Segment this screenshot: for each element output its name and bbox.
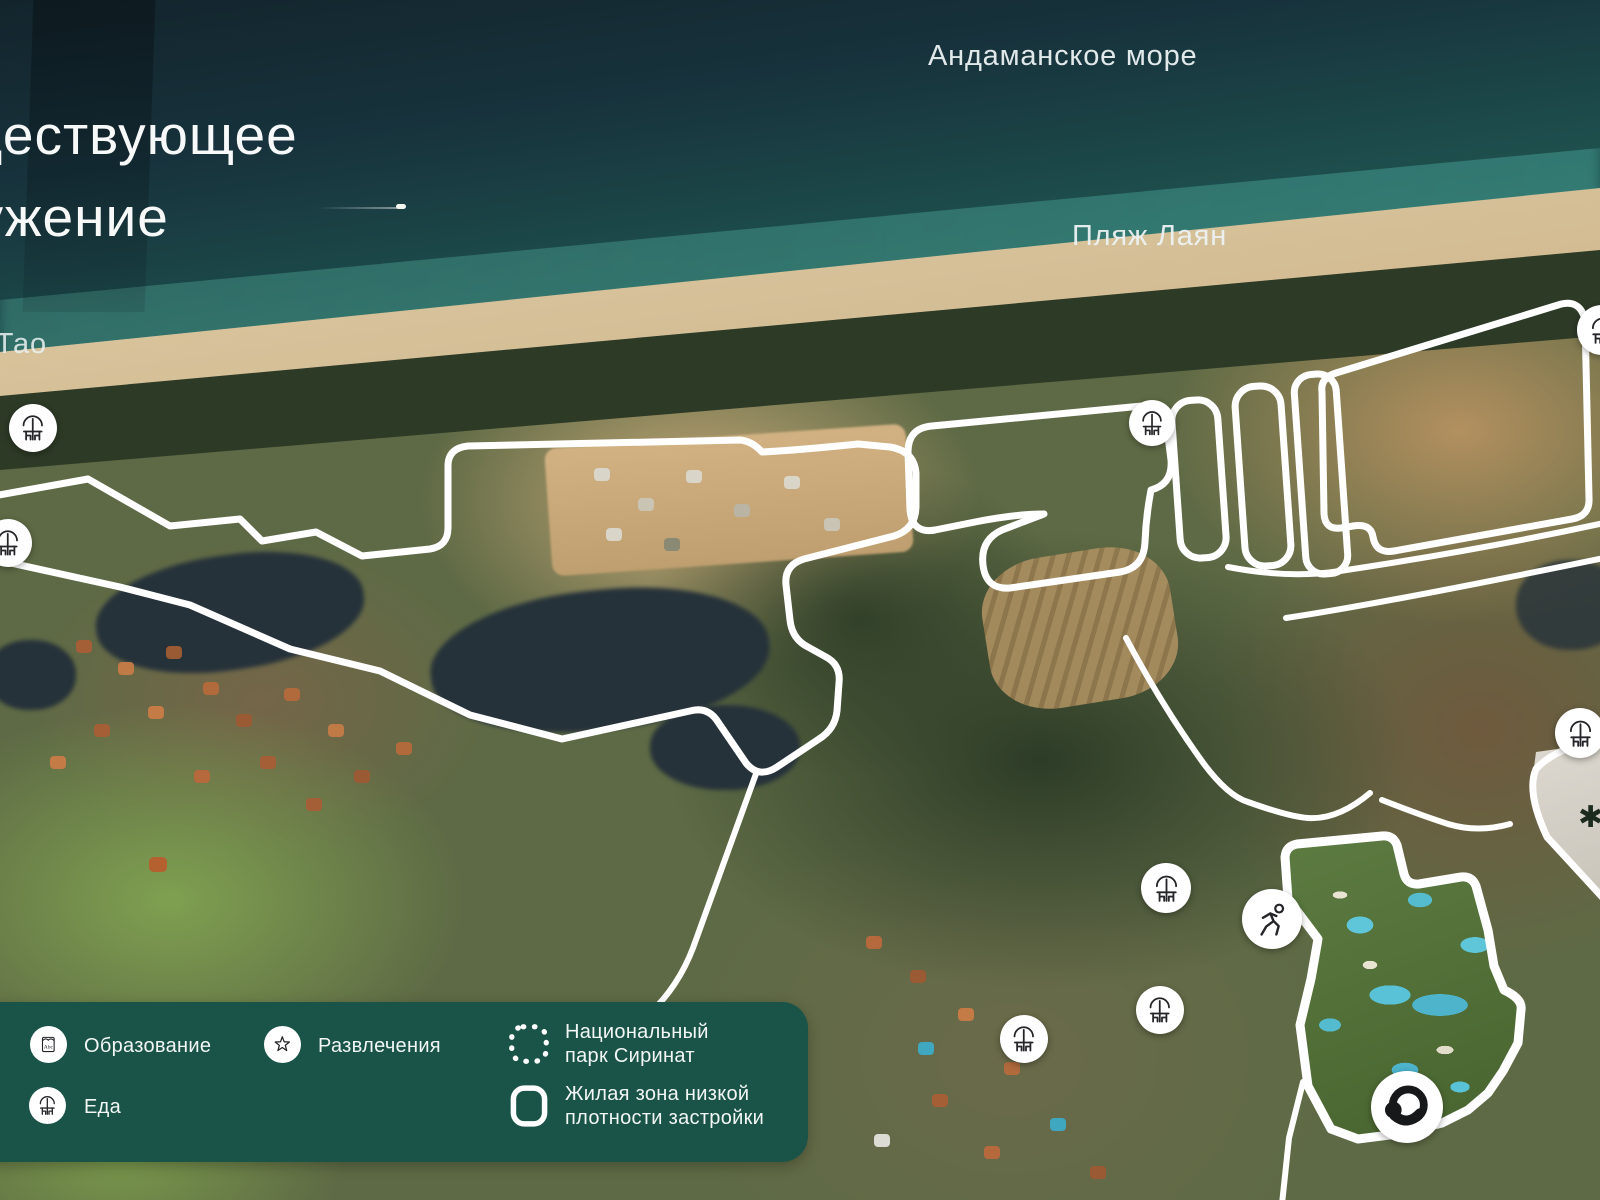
- zone-strip: [1234, 385, 1292, 568]
- rounded-square-icon: [507, 1083, 551, 1129]
- restaurant-icon: [1142, 992, 1178, 1028]
- legend-label-park-line1: Национальный: [565, 1020, 709, 1044]
- residential-zone-outline-west: [0, 440, 916, 772]
- brand-marker[interactable]: [1371, 1071, 1443, 1143]
- residential-zone-outline-east: [1322, 303, 1589, 551]
- restaurant-icon: [0, 525, 26, 561]
- legend-label-zone-line1: Жилая зона низкой: [565, 1082, 764, 1106]
- slide-title-line2: окружение: [0, 176, 298, 258]
- road-line: [1382, 800, 1510, 829]
- legend-label-zone: Жилая зона низкой плотности застройки: [565, 1082, 764, 1130]
- slide-title: Существующее окружение: [0, 94, 298, 258]
- legend-label-entertainment: Развлечения: [318, 1035, 441, 1058]
- construction-border: [1533, 739, 1600, 899]
- road-line: [650, 771, 757, 1013]
- food-marker[interactable]: [1555, 708, 1600, 758]
- beach-label-layan: Пляж Лаян: [1072, 220, 1227, 253]
- road-line: [1286, 558, 1600, 618]
- beach-label-bangtao: Банг Тао: [0, 328, 47, 361]
- zone-strip: [1171, 399, 1228, 560]
- book-abc-icon: [35, 1031, 62, 1058]
- road-line: [1282, 1082, 1303, 1200]
- legend-label-zone-line2: плотности застройки: [565, 1106, 764, 1130]
- dashed-square-icon: [506, 1021, 552, 1067]
- sport-marker[interactable]: [1242, 889, 1302, 949]
- restaurant-icon: [1006, 1021, 1042, 1057]
- running-icon: [1250, 897, 1294, 941]
- entertainment-legend-icon: [264, 1026, 301, 1063]
- food-marker[interactable]: [1000, 1015, 1048, 1063]
- restaurant-icon: [34, 1092, 61, 1119]
- sea-label: Андаманское море: [928, 40, 1197, 73]
- legend-label-education: Образование: [84, 1035, 211, 1058]
- slide-title-line1: Существующее: [0, 94, 298, 176]
- food-marker[interactable]: [1129, 400, 1175, 446]
- road-line: [1126, 638, 1370, 818]
- education-legend-icon: [30, 1026, 67, 1063]
- legend-label-food: Еда: [84, 1096, 121, 1119]
- food-marker[interactable]: [9, 404, 57, 452]
- map-legend: Образование Еда Развлечения Национальный…: [0, 1002, 808, 1162]
- restaurant-icon: [1562, 715, 1599, 752]
- restaurant-icon: [1135, 406, 1169, 440]
- legend-label-park-line2: парк Сиринат: [565, 1044, 709, 1068]
- restaurant-icon: [15, 410, 51, 446]
- star-icon: [269, 1031, 296, 1058]
- food-marker[interactable]: [1136, 986, 1184, 1034]
- brand-logo-icon: [1380, 1080, 1433, 1133]
- restaurant-icon: [1148, 870, 1185, 907]
- restaurant-icon: [1584, 312, 1600, 349]
- food-marker[interactable]: [1141, 863, 1191, 913]
- legend-label-park: Национальный парк Сиринат: [565, 1020, 709, 1068]
- food-legend-icon: [29, 1087, 66, 1124]
